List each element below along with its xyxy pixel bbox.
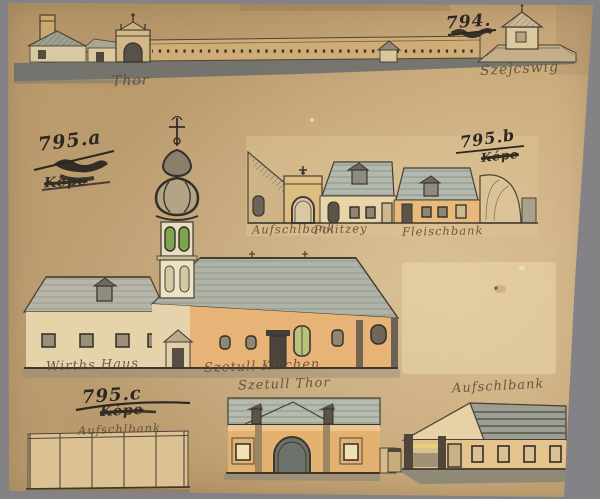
artwork-svg — [0, 0, 600, 499]
panorama-scene — [14, 4, 576, 84]
label-a-scribbles — [34, 151, 114, 190]
inset-scene — [246, 136, 538, 236]
mount-background: 794. Thor Szejcswig 795.a Képe 795.b Kép… — [0, 0, 600, 499]
label-c-scribbles — [76, 402, 190, 414]
paper-sheet: 794. Thor Szejcswig 795.a Képe 795.b Kép… — [0, 0, 600, 499]
